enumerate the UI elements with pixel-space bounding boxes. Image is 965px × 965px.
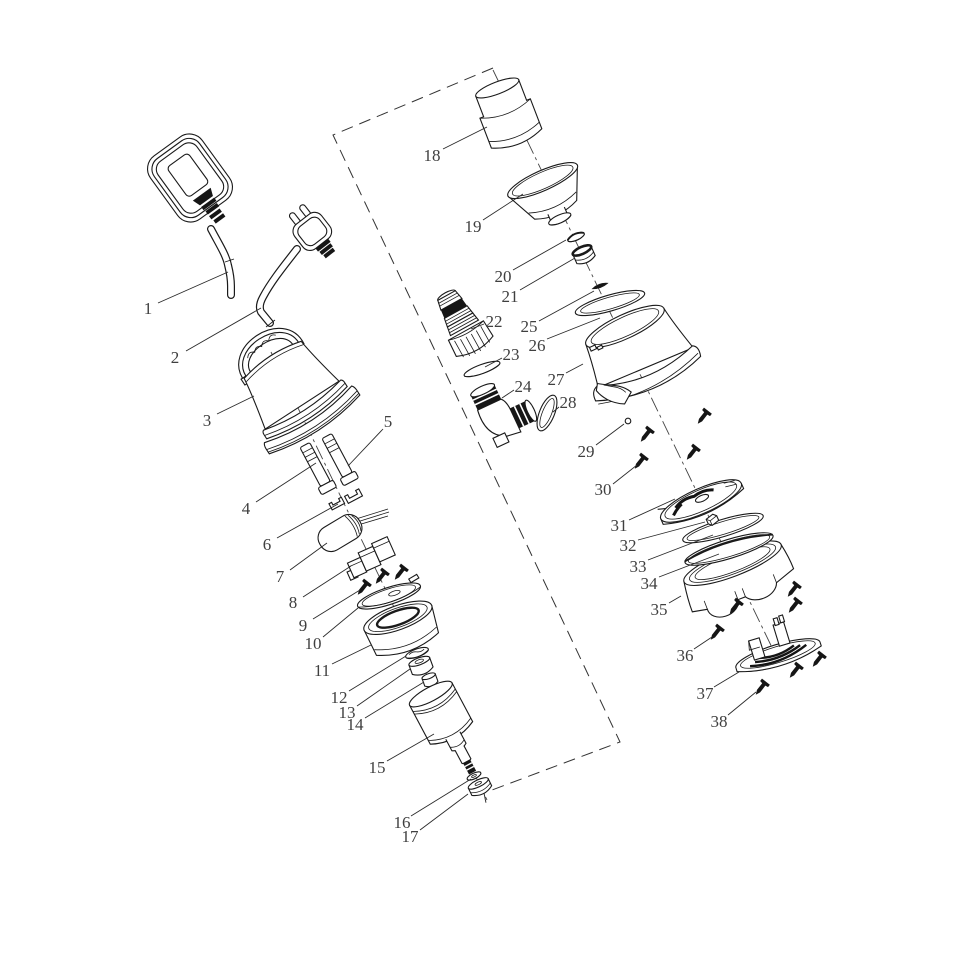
callout-number: 27	[548, 370, 566, 389]
callout-number: 1	[144, 299, 153, 318]
part-6-clips	[329, 489, 363, 510]
callout-number: 37	[697, 684, 715, 703]
callout-number: 4	[242, 499, 251, 518]
exploded-parts-diagram-page: 1 2 3 4 5 6 7 8 9 10 11 12 13 14 15 16 1…	[0, 0, 965, 965]
callout-15: 15	[369, 734, 435, 777]
callout-3: 3	[203, 396, 254, 430]
callout-number: 24	[515, 377, 533, 396]
callout-number: 11	[314, 661, 330, 680]
exploded-parts-diagram: 1 2 3 4 5 6 7 8 9 10 11 12 13 14 15 16 1…	[0, 0, 965, 965]
part-1-float-switch	[141, 128, 246, 295]
callout-35: 35	[651, 596, 682, 619]
parts-drawings	[141, 73, 827, 799]
part-29-ball	[625, 418, 631, 424]
part-2-power-plug	[260, 199, 344, 327]
part-18-coupling	[470, 73, 544, 154]
callout-number: 25	[521, 317, 538, 336]
callout-16: 16	[394, 779, 472, 832]
callout-9: 9	[299, 590, 360, 635]
callout-number: 36	[677, 646, 694, 665]
callout-30: 30	[595, 465, 638, 499]
callout-number: 22	[486, 312, 503, 331]
callout-11: 11	[314, 645, 371, 680]
callout-number: 35	[651, 600, 668, 619]
callout-27: 27	[548, 364, 584, 389]
callout-5: 5	[348, 412, 392, 466]
callout-1: 1	[144, 272, 228, 318]
callout-number: 10	[305, 634, 322, 653]
callout-number: 7	[276, 567, 285, 586]
callout-number: 21	[502, 287, 519, 306]
callout-number: 29	[578, 442, 595, 461]
part-37-strainer-base	[725, 607, 823, 679]
callout-24: 24	[502, 377, 532, 398]
part-3-motor-housing	[212, 306, 364, 460]
callout-number: 2	[171, 348, 180, 367]
callout-number: 20	[495, 267, 512, 286]
part-21-cap-nut	[571, 243, 596, 266]
callout-number: 38	[711, 712, 728, 731]
callout-29: 29	[578, 424, 625, 461]
callout-number: 31	[611, 516, 628, 535]
callout-number: 15	[369, 758, 386, 777]
callout-number: 3	[203, 411, 212, 430]
callout-number: 17	[402, 827, 420, 846]
callout-number: 26	[529, 336, 546, 355]
callout-7: 7	[276, 543, 327, 586]
callout-number: 5	[384, 412, 393, 431]
callout-36: 36	[677, 637, 713, 665]
callout-number: 32	[620, 536, 637, 555]
callout-number: 23	[503, 345, 520, 364]
callout-10: 10	[305, 608, 359, 653]
callout-number: 28	[560, 393, 577, 412]
callout-2: 2	[171, 308, 261, 367]
callout-number: 19	[465, 217, 482, 236]
callout-12: 12	[331, 656, 407, 707]
callout-4: 4	[242, 463, 316, 518]
callout-number: 14	[347, 715, 365, 734]
callout-number: 8	[289, 593, 298, 612]
callout-number: 34	[641, 574, 659, 593]
callout-number: 30	[595, 480, 612, 499]
callout-21: 21	[502, 258, 576, 306]
part-25-pin	[592, 282, 608, 291]
callout-38: 38	[711, 692, 757, 731]
callout-number: 6	[263, 535, 272, 554]
callout-number: 9	[299, 616, 308, 635]
part-28-o-ring	[533, 393, 561, 434]
part-15-rotor	[406, 677, 493, 784]
callout-8: 8	[289, 566, 351, 612]
callout-number: 18	[424, 146, 441, 165]
callout-20: 20	[495, 240, 567, 286]
callout-37: 37	[697, 672, 740, 703]
callout-18: 18	[424, 127, 488, 165]
